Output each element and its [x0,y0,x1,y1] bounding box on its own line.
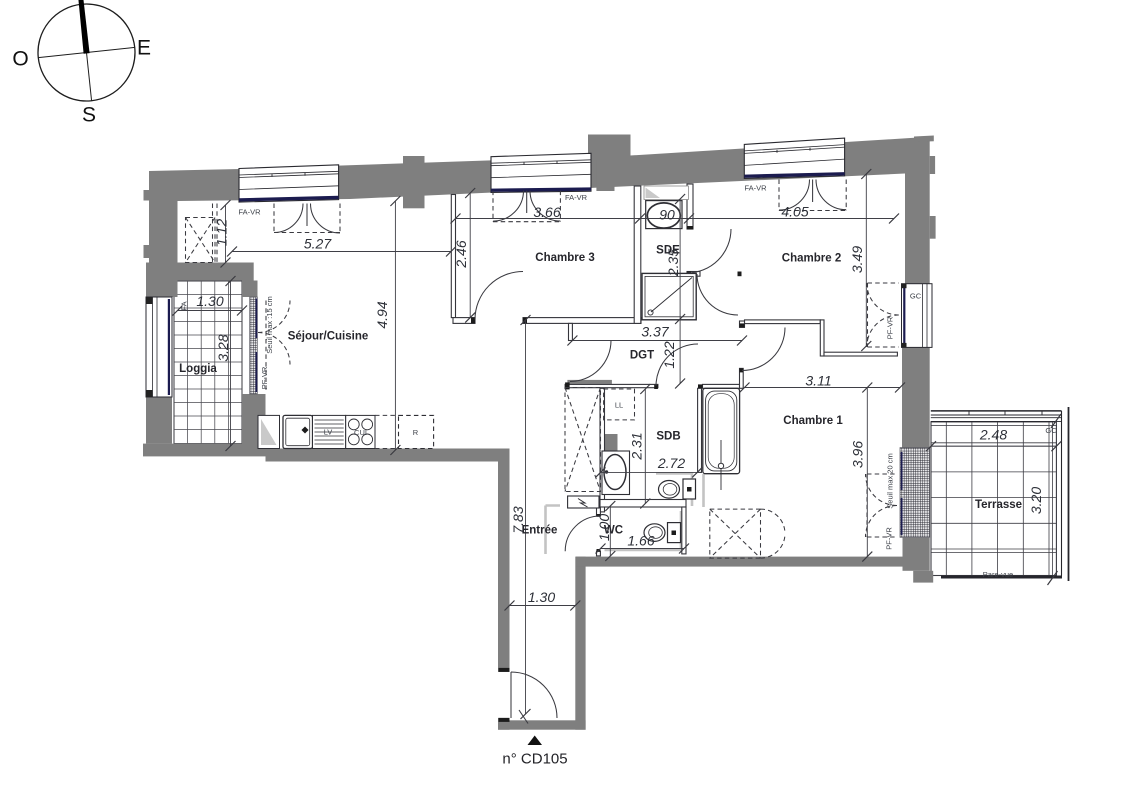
svg-text:LL: LL [615,401,623,410]
svg-text:FA: FA [180,301,189,310]
svg-text:3.66: 3.66 [533,204,560,220]
svg-text:S: S [82,104,96,127]
svg-text:Pare-vue: Pare-vue [983,570,1013,579]
svg-text:PF-VR: PF-VR [260,366,269,389]
svg-text:4.05: 4.05 [781,204,808,220]
svg-text:2.72: 2.72 [657,455,685,471]
svg-text:4.94: 4.94 [374,301,390,328]
svg-text:1.12: 1.12 [214,219,230,246]
svg-text:1.30: 1.30 [196,293,223,309]
svg-text:FA-VR: FA-VR [744,184,767,193]
svg-text:3.37: 3.37 [641,324,669,340]
svg-text:Chambre 2: Chambre 2 [782,253,841,265]
svg-text:DGT: DGT [630,350,654,362]
svg-text:PF-VR: PF-VR [886,316,895,339]
svg-text:3.11: 3.11 [805,373,831,389]
svg-text:Seuil max :15 cm: Seuil max :15 cm [265,296,274,354]
svg-text:Entrée: Entrée [522,525,558,537]
svg-text:3.49: 3.49 [849,246,865,273]
svg-text:Loggia: Loggia [179,363,217,375]
svg-text:SDB: SDB [656,431,680,443]
svg-text:Séjour/Cuisine: Séjour/Cuisine [288,331,369,343]
svg-text:3.20: 3.20 [1028,487,1044,514]
svg-text:O: O [12,48,28,71]
svg-text:1.30: 1.30 [528,589,555,605]
svg-text:n° CD105: n° CD105 [502,751,567,768]
svg-text:PF-VR: PF-VR [885,527,894,550]
svg-text:E: E [137,37,151,60]
svg-text:GC: GC [910,292,922,301]
svg-text:Seuil max 20 cm: Seuil max 20 cm [886,453,895,508]
svg-text:1.00: 1.00 [596,514,612,541]
svg-text:2.31: 2.31 [629,432,645,460]
svg-text:Terrasse: Terrasse [975,499,1022,511]
svg-text:CUI: CUI [354,428,367,437]
svg-text:1.66: 1.66 [627,533,654,549]
svg-text:3.28: 3.28 [215,334,231,361]
svg-text:90: 90 [659,207,675,223]
svg-text:R: R [413,428,419,437]
svg-text:7.83: 7.83 [510,506,526,533]
svg-text:5.27: 5.27 [304,236,332,252]
svg-text:LV: LV [324,428,333,437]
svg-text:Chambre 1: Chambre 1 [783,415,843,427]
svg-text:Chambre 3: Chambre 3 [535,252,594,264]
svg-text:1.22: 1.22 [661,341,677,368]
svg-text:GC: GC [1045,426,1057,435]
svg-text:FA-VR: FA-VR [565,193,588,202]
svg-text:2.46: 2.46 [453,240,469,268]
svg-text:2.48: 2.48 [979,427,1007,443]
svg-text:2.35: 2.35 [665,249,681,277]
svg-text:FA-VR: FA-VR [238,208,261,217]
svg-text:3.96: 3.96 [850,441,866,468]
